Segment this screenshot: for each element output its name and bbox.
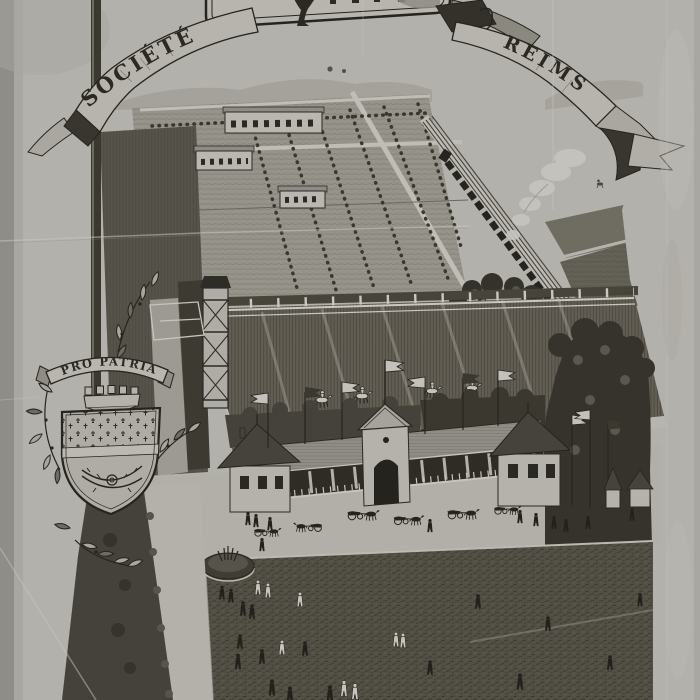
engraving-scan: R [0, 0, 700, 700]
stable-building-3 [278, 186, 327, 208]
stable-building-2 [194, 146, 254, 170]
lawn [205, 541, 653, 700]
judges-tower [200, 276, 231, 408]
left-paper-edge [0, 0, 14, 700]
stable-building-1 [223, 107, 324, 133]
right-tree-mass [544, 318, 655, 545]
engraving-svg: R [0, 0, 700, 700]
shield-semis [62, 408, 160, 448]
